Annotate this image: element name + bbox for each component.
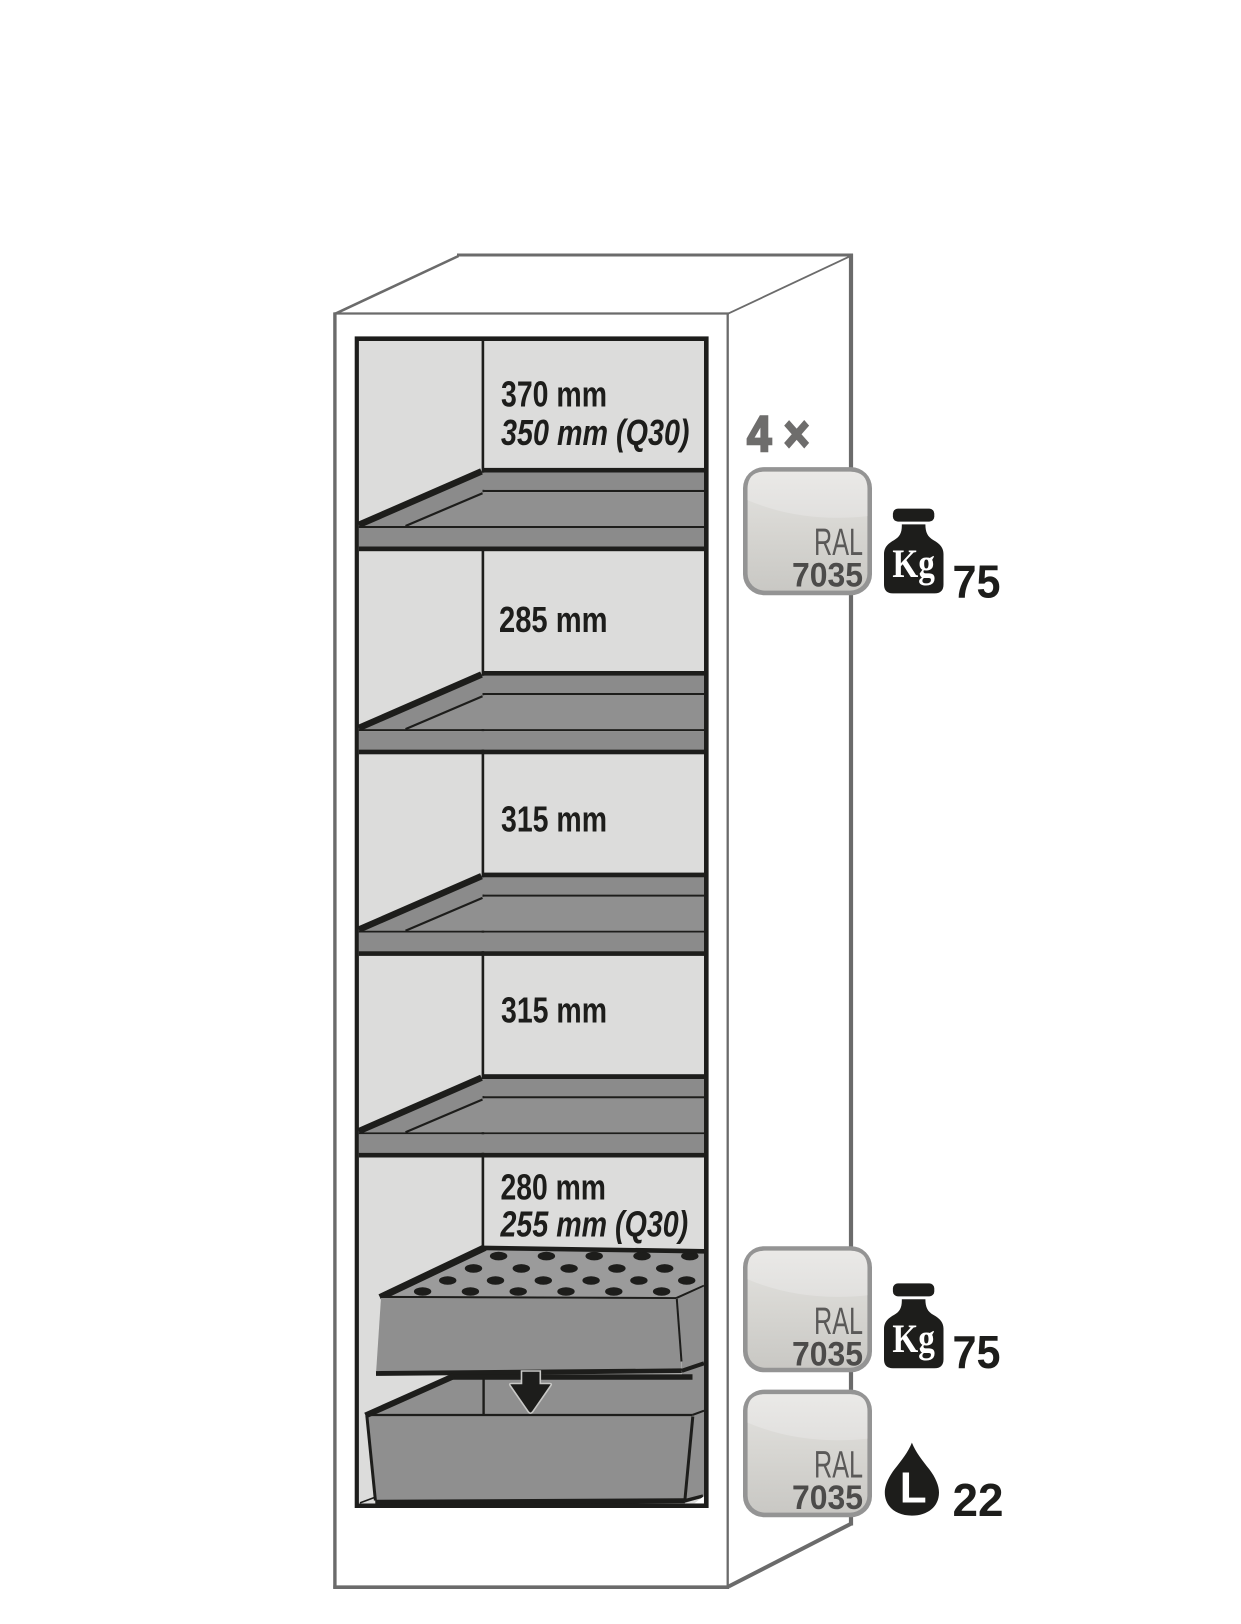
svg-text:75: 75 [953,1326,1001,1378]
svg-text:75: 75 [953,556,1001,608]
svg-text:285 mm: 285 mm [499,599,608,640]
svg-text:280 mm: 280 mm [501,1166,607,1207]
svg-text:Kg: Kg [892,541,935,586]
svg-text:315 mm: 315 mm [501,990,607,1031]
svg-text:370 mm: 370 mm [501,373,607,414]
svg-text:Kg: Kg [892,1316,935,1361]
svg-text:L: L [900,1463,927,1512]
svg-text:22: 22 [953,1474,1004,1526]
svg-text:7035: 7035 [792,557,863,595]
svg-text:7035: 7035 [792,1336,863,1374]
svg-text:350 mm (Q30): 350 mm (Q30) [501,412,690,453]
svg-text:7035: 7035 [792,1479,863,1517]
svg-text:4 ×: 4 × [747,406,810,462]
svg-text:255 mm (Q30): 255 mm (Q30) [500,1203,688,1244]
svg-text:315 mm: 315 mm [501,799,607,840]
